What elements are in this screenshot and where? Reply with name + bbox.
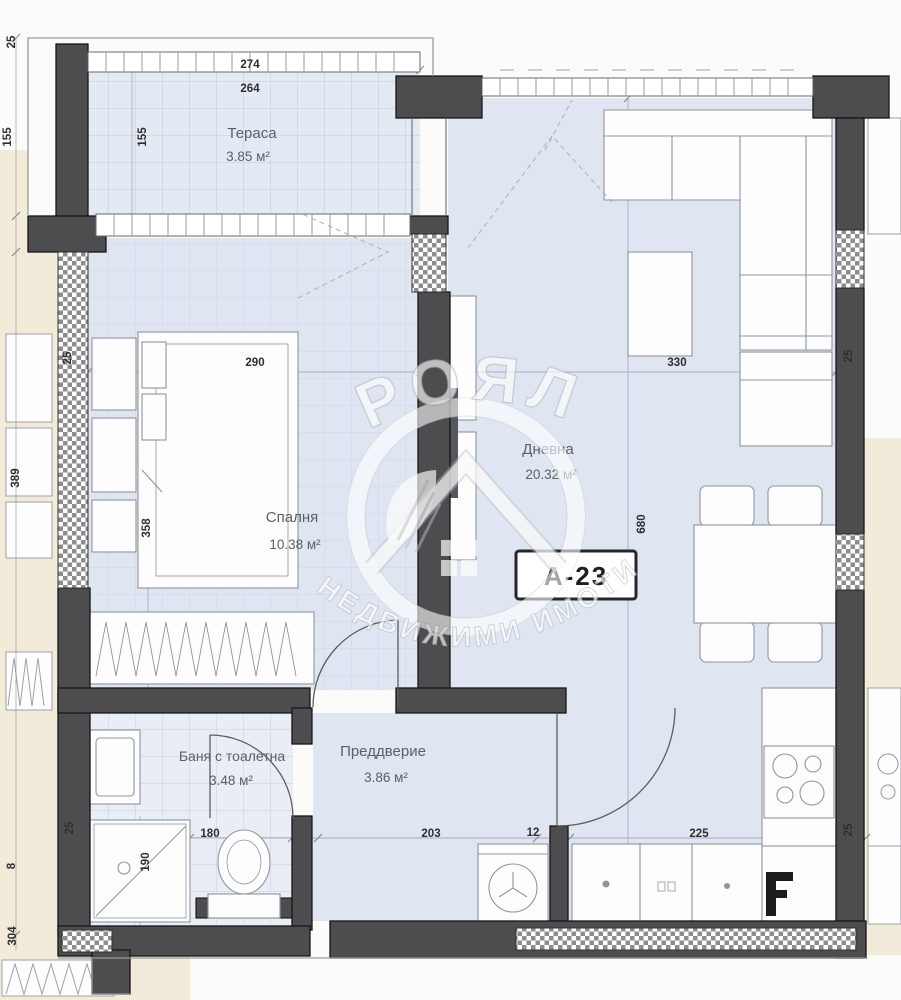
dim-389: 389 (10, 468, 22, 487)
wall-central-cap (410, 216, 448, 234)
wall-bathroom-top (58, 688, 310, 713)
dim-12: 12 (527, 827, 540, 839)
dim-25-c: 25 (64, 821, 76, 834)
dim-290: 290 (245, 357, 264, 369)
wall-top-header (396, 76, 482, 118)
dim-264: 264 (240, 83, 260, 95)
wall-terrace-left (56, 44, 88, 218)
wall-kitchen-stub (550, 826, 568, 926)
wall-left-lower (58, 588, 90, 935)
floor-plan-drawing: 274 264 155 155 25 25 25 25 25 290 358 3… (0, 0, 901, 1000)
wall-right-lower (836, 590, 864, 958)
dim-25-a: 25 (6, 35, 18, 48)
sink-icon (90, 730, 140, 804)
washing-machine-icon (478, 844, 548, 924)
wall-junction-left (28, 216, 106, 252)
bed-icon (92, 332, 298, 588)
dim-180: 180 (200, 828, 219, 840)
dim-304: 304 (7, 926, 19, 946)
side-table-icon (628, 252, 692, 356)
wall-right-upper (836, 118, 864, 230)
dim-25-e: 25 (843, 823, 855, 836)
dim-203: 203 (421, 828, 440, 840)
wall-hall-top (396, 688, 566, 713)
wardrobe-icon (86, 612, 314, 684)
room-hallway-area: 3.86 м² (364, 770, 408, 785)
dim-8: 8 (6, 862, 18, 869)
dim-330: 330 (667, 357, 686, 369)
kitchen-counter-icon (572, 844, 836, 924)
dim-358: 358 (141, 518, 153, 538)
dim-155: 155 (137, 127, 149, 147)
room-bathroom-name: Баня с тоалетна (179, 748, 286, 764)
terrace-bedroom-window (96, 214, 410, 236)
wall-right-header (813, 76, 889, 118)
room-bedroom-name: Спалня (266, 509, 318, 526)
dim-225: 225 (689, 828, 709, 840)
wall-bath-stub-bottom (292, 816, 312, 930)
room-terrace-area: 3.85 м² (226, 149, 270, 164)
dim-274: 274 (240, 59, 260, 71)
dim-190: 190 (140, 852, 152, 871)
room-bathroom-area: 3.48 м² (209, 773, 253, 788)
armchair-icon (740, 352, 832, 446)
wall-bath-stub-top (292, 708, 312, 744)
room-terrace-name: Тераса (227, 125, 277, 142)
room-hallway-name: Преддверие (340, 743, 426, 760)
floor-plan-page: 274 264 155 155 25 25 25 25 25 290 358 3… (0, 0, 901, 1000)
room-bedroom-area: 10.38 м² (269, 537, 321, 552)
dim-155-left: 155 (2, 127, 14, 147)
dim-25-b: 25 (62, 351, 74, 364)
wall-right-mid (836, 288, 864, 534)
dim-680: 680 (636, 514, 648, 533)
dim-25-d: 25 (843, 349, 855, 362)
stove-icon (762, 688, 836, 846)
wall-step-bottom-left (92, 950, 130, 994)
